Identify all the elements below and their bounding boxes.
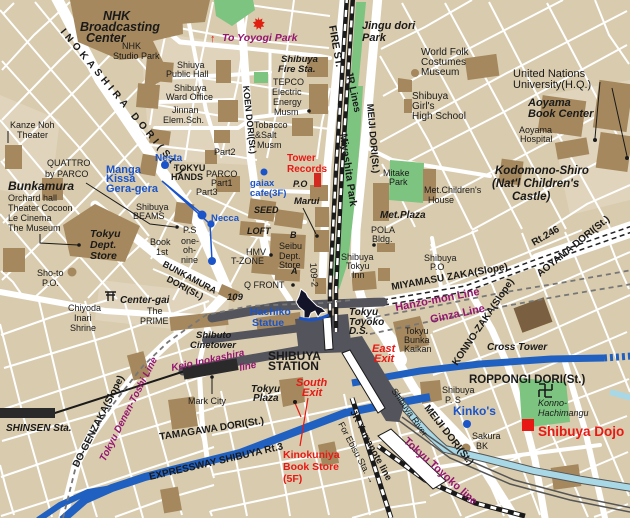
svg-text:BEAMS: BEAMS	[133, 211, 165, 221]
svg-text:The Museum: The Museum	[8, 223, 61, 233]
svg-text:P.O.: P.O.	[42, 278, 59, 288]
svg-text:Jingu dori: Jingu dori	[362, 20, 416, 32]
svg-text:Store: Store	[90, 250, 117, 262]
svg-text:D.S.: D.S.	[349, 326, 368, 337]
svg-text:cafe(3F): cafe(3F)	[250, 188, 286, 199]
svg-text:Part2: Part2	[214, 147, 236, 157]
svg-text:109-2: 109-2	[307, 262, 320, 287]
svg-text:109: 109	[227, 292, 244, 303]
svg-text:Musm: Musm	[257, 140, 282, 150]
svg-text:by PARCO: by PARCO	[45, 169, 88, 179]
svg-text:Bunkamura: Bunkamura	[8, 179, 74, 193]
svg-text:Museum: Museum	[421, 67, 459, 78]
svg-text:Cross Tower: Cross Tower	[487, 342, 548, 353]
svg-text:Hachimangu: Hachimangu	[538, 408, 589, 418]
svg-text:Statue: Statue	[252, 317, 284, 329]
svg-text:B: B	[290, 230, 297, 240]
svg-text:T-ZONE: T-ZONE	[231, 256, 264, 266]
svg-text:NHK: NHK	[122, 41, 141, 51]
svg-text:Tobacco: Tobacco	[254, 120, 288, 130]
svg-text:Kodomono-Shiro: Kodomono-Shiro	[495, 165, 589, 177]
svg-text:(Nat'l Children's: (Nat'l Children's	[492, 178, 579, 190]
svg-text:Orchard hall: Orchard hall	[8, 193, 57, 203]
svg-text:(5F): (5F)	[283, 473, 302, 485]
svg-text:Shrine: Shrine	[70, 323, 96, 333]
svg-text:Necca: Necca	[211, 213, 240, 224]
svg-text:Cinetower: Cinetower	[190, 340, 237, 351]
svg-text:Center: Center	[86, 31, 127, 45]
svg-text:Castle): Castle)	[512, 191, 551, 203]
svg-text:Musm: Musm	[274, 107, 299, 117]
svg-text:Q FRONT: Q FRONT	[244, 280, 285, 290]
svg-text:P.O: P.O	[430, 262, 444, 272]
svg-text:QUATTRO: QUATTRO	[47, 158, 90, 168]
svg-text:Studio Park: Studio Park	[113, 51, 160, 61]
svg-text:Electric: Electric	[272, 87, 302, 97]
svg-text:Hospital: Hospital	[520, 134, 553, 144]
svg-text:PRIME: PRIME	[140, 316, 169, 326]
svg-text:Theater Cocoon: Theater Cocoon	[8, 203, 73, 213]
svg-text:Book Store: Book Store	[283, 461, 339, 473]
svg-text:Part3: Part3	[196, 187, 218, 197]
svg-text:Theater: Theater	[17, 130, 48, 140]
svg-text:Jinnan: Jinnan	[172, 105, 199, 115]
svg-text:House: House	[428, 195, 454, 205]
svg-text:nine: nine	[181, 255, 198, 265]
svg-text:Records: Records	[287, 164, 327, 175]
svg-text:P.S: P.S	[183, 225, 196, 235]
svg-text:The: The	[147, 306, 163, 316]
svg-text:Inari: Inari	[74, 313, 92, 323]
svg-text:Exit: Exit	[302, 387, 324, 399]
svg-text:To Yoyogi Park: To Yoyogi Park	[222, 32, 299, 44]
svg-text:Shibuya Dojo: Shibuya Dojo	[538, 424, 624, 439]
svg-text:TEPCO: TEPCO	[273, 77, 304, 87]
svg-text:Exit: Exit	[374, 353, 396, 365]
svg-text:Ward Office: Ward Office	[166, 92, 213, 102]
svg-text:Kaikan: Kaikan	[404, 344, 432, 354]
svg-text:Shibuya: Shibuya	[442, 385, 475, 395]
svg-text:HANDS: HANDS	[171, 172, 203, 182]
svg-text:Tower: Tower	[287, 153, 316, 164]
svg-text:Elem.Sch.: Elem.Sch.	[163, 115, 204, 125]
svg-text:P.O: P.O	[293, 179, 307, 189]
svg-text:Mark City: Mark City	[188, 396, 226, 406]
svg-text:&Salt: &Salt	[255, 130, 277, 140]
svg-text:Le Cinema: Le Cinema	[8, 213, 52, 223]
svg-text:High School: High School	[412, 111, 466, 122]
svg-text:Met.Children's: Met.Children's	[424, 185, 482, 195]
svg-text:Park: Park	[389, 177, 408, 187]
svg-text:Met.Plaza: Met.Plaza	[380, 210, 426, 221]
svg-text:Park: Park	[362, 32, 387, 44]
svg-text:Book Center: Book Center	[528, 108, 594, 120]
svg-text:1st: 1st	[156, 247, 169, 257]
svg-text:Sakura: Sakura	[472, 431, 501, 441]
svg-text:Book: Book	[150, 237, 171, 247]
svg-text:↑: ↑	[210, 33, 216, 45]
svg-text:Center-gai: Center-gai	[120, 295, 170, 306]
svg-text:Fire Sta.: Fire Sta.	[278, 64, 316, 75]
svg-text:Gera-gera: Gera-gera	[106, 183, 159, 195]
svg-text:Marui: Marui	[294, 196, 320, 207]
svg-text:ROPPONGI DORI(St.): ROPPONGI DORI(St.)	[469, 374, 585, 386]
svg-text:Seibu: Seibu	[279, 241, 302, 251]
svg-text:Kanze Noh: Kanze Noh	[10, 120, 55, 130]
svg-text:Plaza: Plaza	[253, 393, 279, 404]
svg-text:BK: BK	[476, 441, 488, 451]
svg-text:Kinko's: Kinko's	[453, 404, 496, 418]
svg-text:LOFT: LOFT	[247, 226, 272, 236]
svg-text:Chiyoda: Chiyoda	[68, 303, 101, 313]
svg-text:Bldg.: Bldg.	[372, 234, 393, 244]
svg-text:SHINSEN Sta.: SHINSEN Sta.	[6, 423, 72, 434]
svg-text:A: A	[290, 266, 298, 276]
svg-text:STATION: STATION	[268, 359, 319, 373]
svg-text:SEED: SEED	[254, 205, 279, 215]
svg-text:Nesta: Nesta	[155, 153, 183, 164]
svg-text:oh-: oh-	[183, 245, 196, 255]
svg-text:Sho-to: Sho-to	[37, 268, 64, 278]
svg-text:Energy: Energy	[273, 97, 302, 107]
svg-text:University(H.Q.): University(H.Q.)	[513, 79, 591, 91]
svg-text:Public Hall: Public Hall	[166, 69, 209, 79]
svg-text:Konno-: Konno-	[538, 398, 567, 408]
svg-text:Inn: Inn	[352, 270, 365, 280]
svg-text:Kinokuniya: Kinokuniya	[283, 449, 340, 461]
